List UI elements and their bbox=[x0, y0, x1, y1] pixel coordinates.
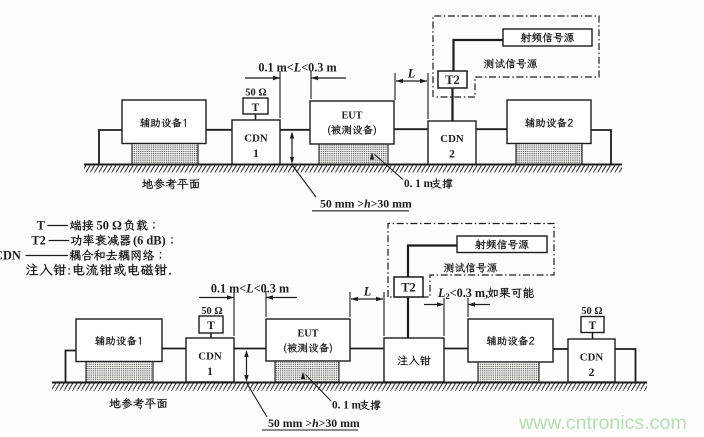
svg-text:50 Ω: 50 Ω bbox=[245, 88, 266, 99]
svg-text:CDN: CDN bbox=[580, 352, 604, 364]
svg-text:T: T bbox=[252, 102, 260, 114]
svg-text:T2: T2 bbox=[31, 234, 45, 248]
svg-text:CDN: CDN bbox=[440, 133, 464, 145]
svg-text:L2<0.3 m,: L2<0.3 m, bbox=[437, 286, 488, 301]
svg-text:50 mm >h>30 mm: 50 mm >h>30 mm bbox=[268, 416, 360, 430]
svg-text:50 Ω: 50 Ω bbox=[581, 306, 602, 317]
svg-text:EUT: EUT bbox=[298, 329, 319, 340]
svg-text:0. 1 m: 0. 1 m bbox=[332, 400, 362, 412]
svg-text:www.cntronics.com: www.cntronics.com bbox=[518, 412, 687, 434]
svg-text:2: 2 bbox=[449, 149, 455, 161]
svg-text:50 Ω: 50 Ω bbox=[97, 219, 122, 233]
svg-text:1: 1 bbox=[207, 366, 213, 378]
svg-text:L: L bbox=[407, 67, 415, 81]
svg-text:T: T bbox=[207, 320, 215, 332]
svg-text:T2: T2 bbox=[401, 281, 416, 295]
svg-text:0. 1 m: 0. 1 m bbox=[404, 178, 434, 190]
svg-text:CDN: CDN bbox=[0, 249, 21, 263]
svg-text:L: L bbox=[363, 285, 371, 299]
svg-text:CDN: CDN bbox=[244, 133, 268, 145]
svg-text:0.1 m<L<0.3 m: 0.1 m<L<0.3 m bbox=[211, 282, 289, 296]
svg-text:EUT: EUT bbox=[342, 111, 363, 122]
svg-text:1: 1 bbox=[253, 148, 259, 160]
svg-text:2: 2 bbox=[589, 367, 595, 379]
svg-text:(6 dB): (6 dB) bbox=[133, 234, 166, 248]
svg-text:0.1 m<L<0.3 m: 0.1 m<L<0.3 m bbox=[258, 61, 336, 75]
svg-text:50 mm >h>30 mm: 50 mm >h>30 mm bbox=[320, 197, 412, 211]
svg-text:T: T bbox=[589, 320, 597, 332]
svg-text:T: T bbox=[37, 219, 46, 233]
svg-text:T2: T2 bbox=[445, 73, 460, 87]
svg-text:CDN: CDN bbox=[198, 351, 222, 363]
